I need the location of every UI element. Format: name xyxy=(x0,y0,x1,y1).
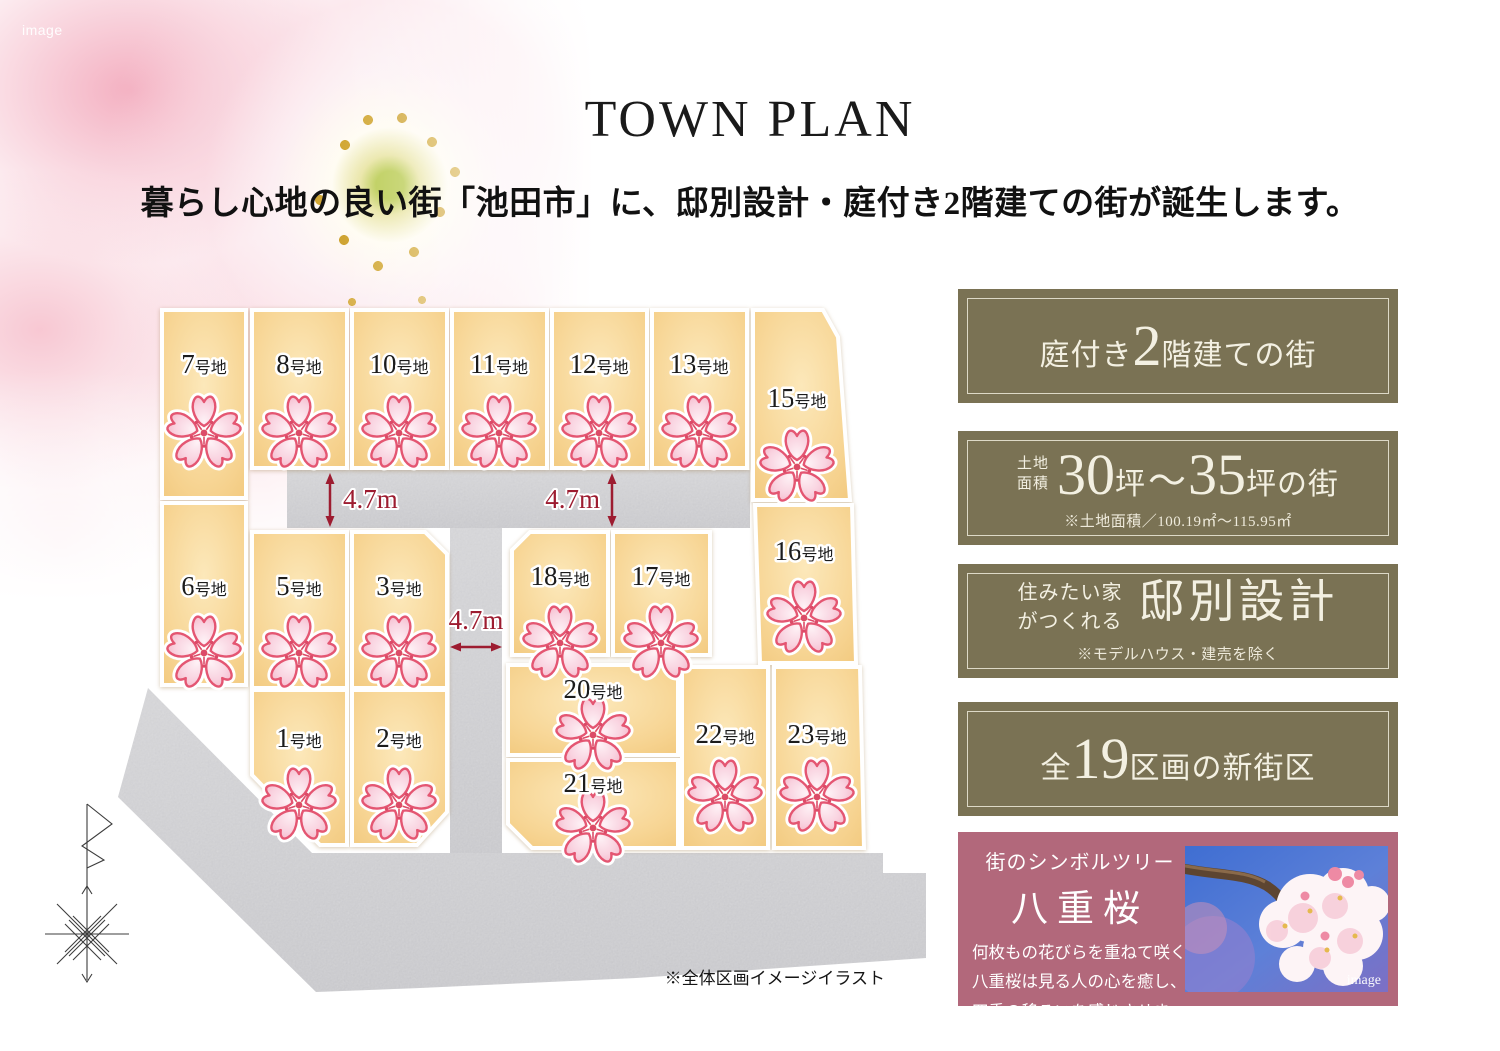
panel-big-number: 2 xyxy=(1133,317,1162,375)
road-width-label: 4.7m xyxy=(449,605,504,635)
feature-panel-blocks: 全19区画の新街区 xyxy=(958,702,1398,816)
symbol-tree-heading: 街のシンボルツリー xyxy=(972,846,1188,875)
symbol-tree-description: 何枚もの花びらを重ねて咲く 八重桜は見る人の心を癒し、 四季の移ろいを感じさせま… xyxy=(972,938,1188,1051)
map-disclaimer-note: ※全体区画イメージイラスト xyxy=(665,969,885,988)
panel-stack-label: 住みたい家がつくれる xyxy=(1018,579,1123,637)
panel-note: ※土地面積／100.19㎡〜115.95㎡ xyxy=(1064,510,1291,531)
lots xyxy=(162,310,864,848)
photo-image-label: image xyxy=(1347,973,1381,988)
panel-text: 庭付き xyxy=(1040,341,1133,371)
hero-image-label: image xyxy=(22,22,63,38)
panel-big-number: 35 xyxy=(1188,446,1246,504)
panel-text: 坪の街 xyxy=(1246,470,1339,500)
panel-text: 〜 xyxy=(1148,463,1186,501)
feature-panel-two-story: 庭付き2階建ての街 xyxy=(958,289,1398,403)
panel-stack-label: 土地面積 xyxy=(1017,455,1049,494)
symbol-tree-name: 八重桜 xyxy=(972,878,1188,932)
town-plan-page: image TOWN PLAN 暮らし心地の良い街「池田市」に、邸別設計・庭付き… xyxy=(0,0,1500,1051)
road-width-label: 4.7m xyxy=(343,484,398,514)
yaezakura-photo: image xyxy=(1185,846,1388,992)
road-width-label: 4.7m xyxy=(545,484,600,514)
panel-text: 邸別設計 xyxy=(1139,579,1339,625)
panel-text: 区画の新街区 xyxy=(1130,754,1316,784)
panel-big-number: 19 xyxy=(1072,730,1130,788)
panel-text: 全 xyxy=(1041,754,1072,784)
page-title: TOWN PLAN xyxy=(0,90,1500,149)
page-subtitle: 暮らし心地の良い街「池田市」に、邸別設計・庭付き2階建ての街が誕生します。 xyxy=(0,176,1500,224)
feature-panel-custom-design: 住みたい家がつくれる邸別設計 ※モデルハウス・建売を除く xyxy=(958,564,1398,678)
site-plan-map: 7号地 8号地 10号地 11号地 12号地 13号地 15号地 6号地 5号地… xyxy=(90,295,935,1005)
symbol-tree-panel: 街のシンボルツリー 八重桜 何枚もの花びらを重ねて咲く 八重桜は見る人の心を癒し… xyxy=(958,832,1398,1006)
feature-panel-land-area: 土地面積30坪〜35坪の街 ※土地面積／100.19㎡〜115.95㎡ xyxy=(958,431,1398,545)
panel-big-number: 30 xyxy=(1057,446,1115,504)
panel-text: 坪 xyxy=(1115,470,1146,500)
north-compass-icon xyxy=(25,788,145,998)
panel-text: 階建ての街 xyxy=(1162,341,1317,371)
panel-note: ※モデルハウス・建売を除く xyxy=(1077,643,1279,664)
